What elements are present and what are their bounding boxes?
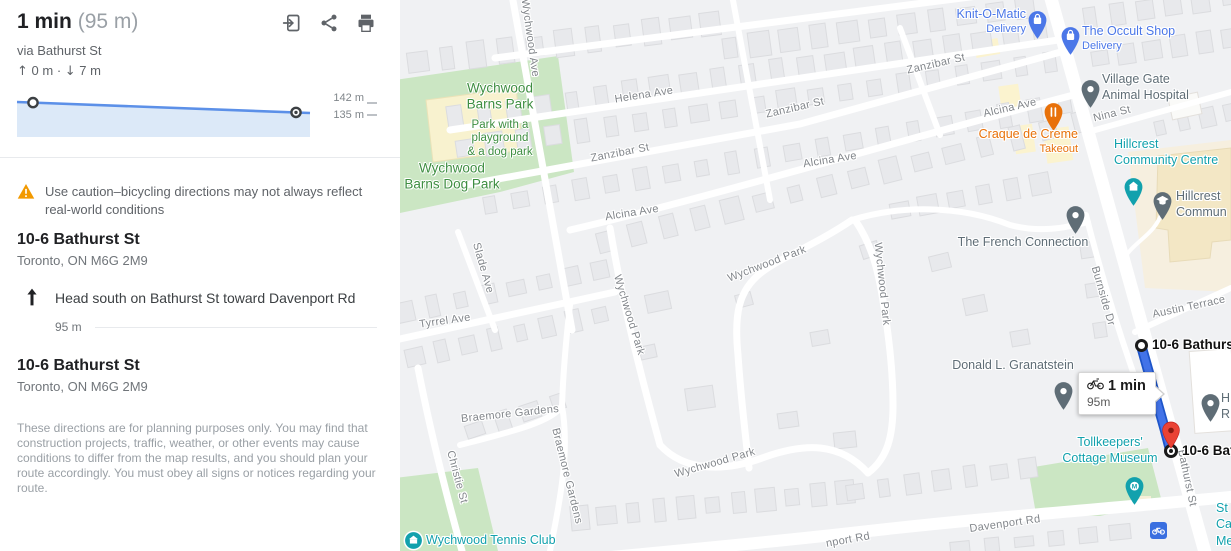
- elevation-start-marker: [28, 98, 37, 107]
- poi-label[interactable]: Tollkeepers'Cottage Museum: [1062, 434, 1157, 467]
- ascent-arrow-icon: ↑: [17, 64, 28, 79]
- route-end-label[interactable]: 10-6 Bathurst St: [1182, 443, 1231, 458]
- straight-arrow-icon: [22, 287, 42, 307]
- elevation-min-label: 135 m: [332, 109, 364, 121]
- poi-label[interactable]: Village GateAnimal Hospital: [1102, 71, 1189, 104]
- park-label: Park with aplayground& a dog park: [467, 119, 532, 159]
- elevation-summary: ↑ 0 m · ↓ 7 m: [17, 63, 101, 79]
- park-label: WychwoodBarns Dog Park: [404, 160, 499, 191]
- destination-pin-icon[interactable]: [1161, 421, 1181, 454]
- route-duration: 1 min: [17, 10, 72, 33]
- route-callout[interactable]: 1 min 95m: [1078, 372, 1156, 415]
- poi-pin-icon[interactable]: [1053, 381, 1074, 416]
- caution-banner: Use caution–bicycling directions may not…: [17, 183, 372, 219]
- descent-arrow-icon: ↓: [65, 64, 76, 79]
- poi-pin-icon[interactable]: [1080, 79, 1101, 114]
- origin-subtitle: Toronto, ON M6G 2M9: [17, 253, 148, 268]
- directions-panel: 1 min (95 m) via Bathurst St ↑ 0 m · ↓ 7…: [0, 0, 400, 551]
- poi-label[interactable]: Wychwood Tennis Club: [426, 532, 556, 548]
- destination-subtitle: Toronto, ON M6G 2M9: [17, 379, 148, 394]
- share-icon[interactable]: [319, 13, 339, 33]
- poi-label[interactable]: Donald L. Granatstein: [952, 357, 1074, 373]
- route-start-label[interactable]: 10-6 Bathurst St: [1152, 337, 1231, 352]
- poi-pin-icon[interactable]: [1060, 26, 1081, 61]
- route-distance: (95 m): [78, 10, 139, 33]
- route-start-marker[interactable]: [1135, 339, 1148, 352]
- poi-pin-icon[interactable]: [1152, 191, 1173, 226]
- send-to-phone-icon[interactable]: [282, 13, 302, 33]
- elevation-max-label: 142 m: [332, 92, 364, 104]
- poi-label[interactable]: The Occult ShopDelivery: [1082, 23, 1175, 54]
- poi-label[interactable]: StCaMe: [1216, 500, 1231, 549]
- poi-circle-icon[interactable]: [403, 530, 424, 551]
- caution-text: Use caution–bicycling directions may not…: [45, 183, 363, 219]
- map-canvas[interactable]: Wychwood AveHelena AveZanzibar StZanziba…: [400, 0, 1231, 551]
- bicycle-icon: [1087, 378, 1104, 394]
- svg-text:M: M: [1131, 483, 1137, 490]
- poi-label[interactable]: HillcrestCommunity Centre: [1114, 136, 1218, 169]
- origin-title: 10-6 Bathurst St: [17, 231, 140, 249]
- poi-pin-icon[interactable]: [1123, 177, 1144, 212]
- poi-pin-icon[interactable]: [1027, 10, 1048, 45]
- poi-pin-icon[interactable]: M: [1124, 476, 1145, 511]
- section-divider: [0, 157, 400, 158]
- bike-route-icon[interactable]: [1150, 522, 1167, 539]
- step-divider: [95, 327, 377, 328]
- poi-label[interactable]: Knit-O-MaticDelivery: [957, 6, 1026, 37]
- print-icon[interactable]: [356, 13, 376, 33]
- callout-duration: 1 min: [1108, 378, 1146, 394]
- poi-label[interactable]: HR: [1221, 390, 1230, 423]
- step-instruction[interactable]: Head south on Bathurst St toward Davenpo…: [55, 290, 375, 306]
- callout-distance: 95m: [1087, 395, 1146, 409]
- poi-label[interactable]: HillcrestCommun: [1176, 188, 1227, 221]
- route-via: via Bathurst St: [17, 43, 102, 58]
- step-distance: 95 m: [55, 320, 82, 334]
- route-summary: 1 min (95 m): [17, 10, 138, 34]
- poi-pin-icon[interactable]: [1200, 393, 1221, 428]
- warning-icon: [17, 183, 35, 219]
- park-label: WychwoodBarns Park: [467, 80, 534, 111]
- poi-label[interactable]: Craque de CremeTakeout: [979, 126, 1078, 157]
- disclaimer-text: These directions are for planning purpos…: [17, 421, 379, 496]
- poi-label[interactable]: The French Connection: [958, 234, 1089, 250]
- destination-title: 10-6 Bathurst St: [17, 357, 140, 375]
